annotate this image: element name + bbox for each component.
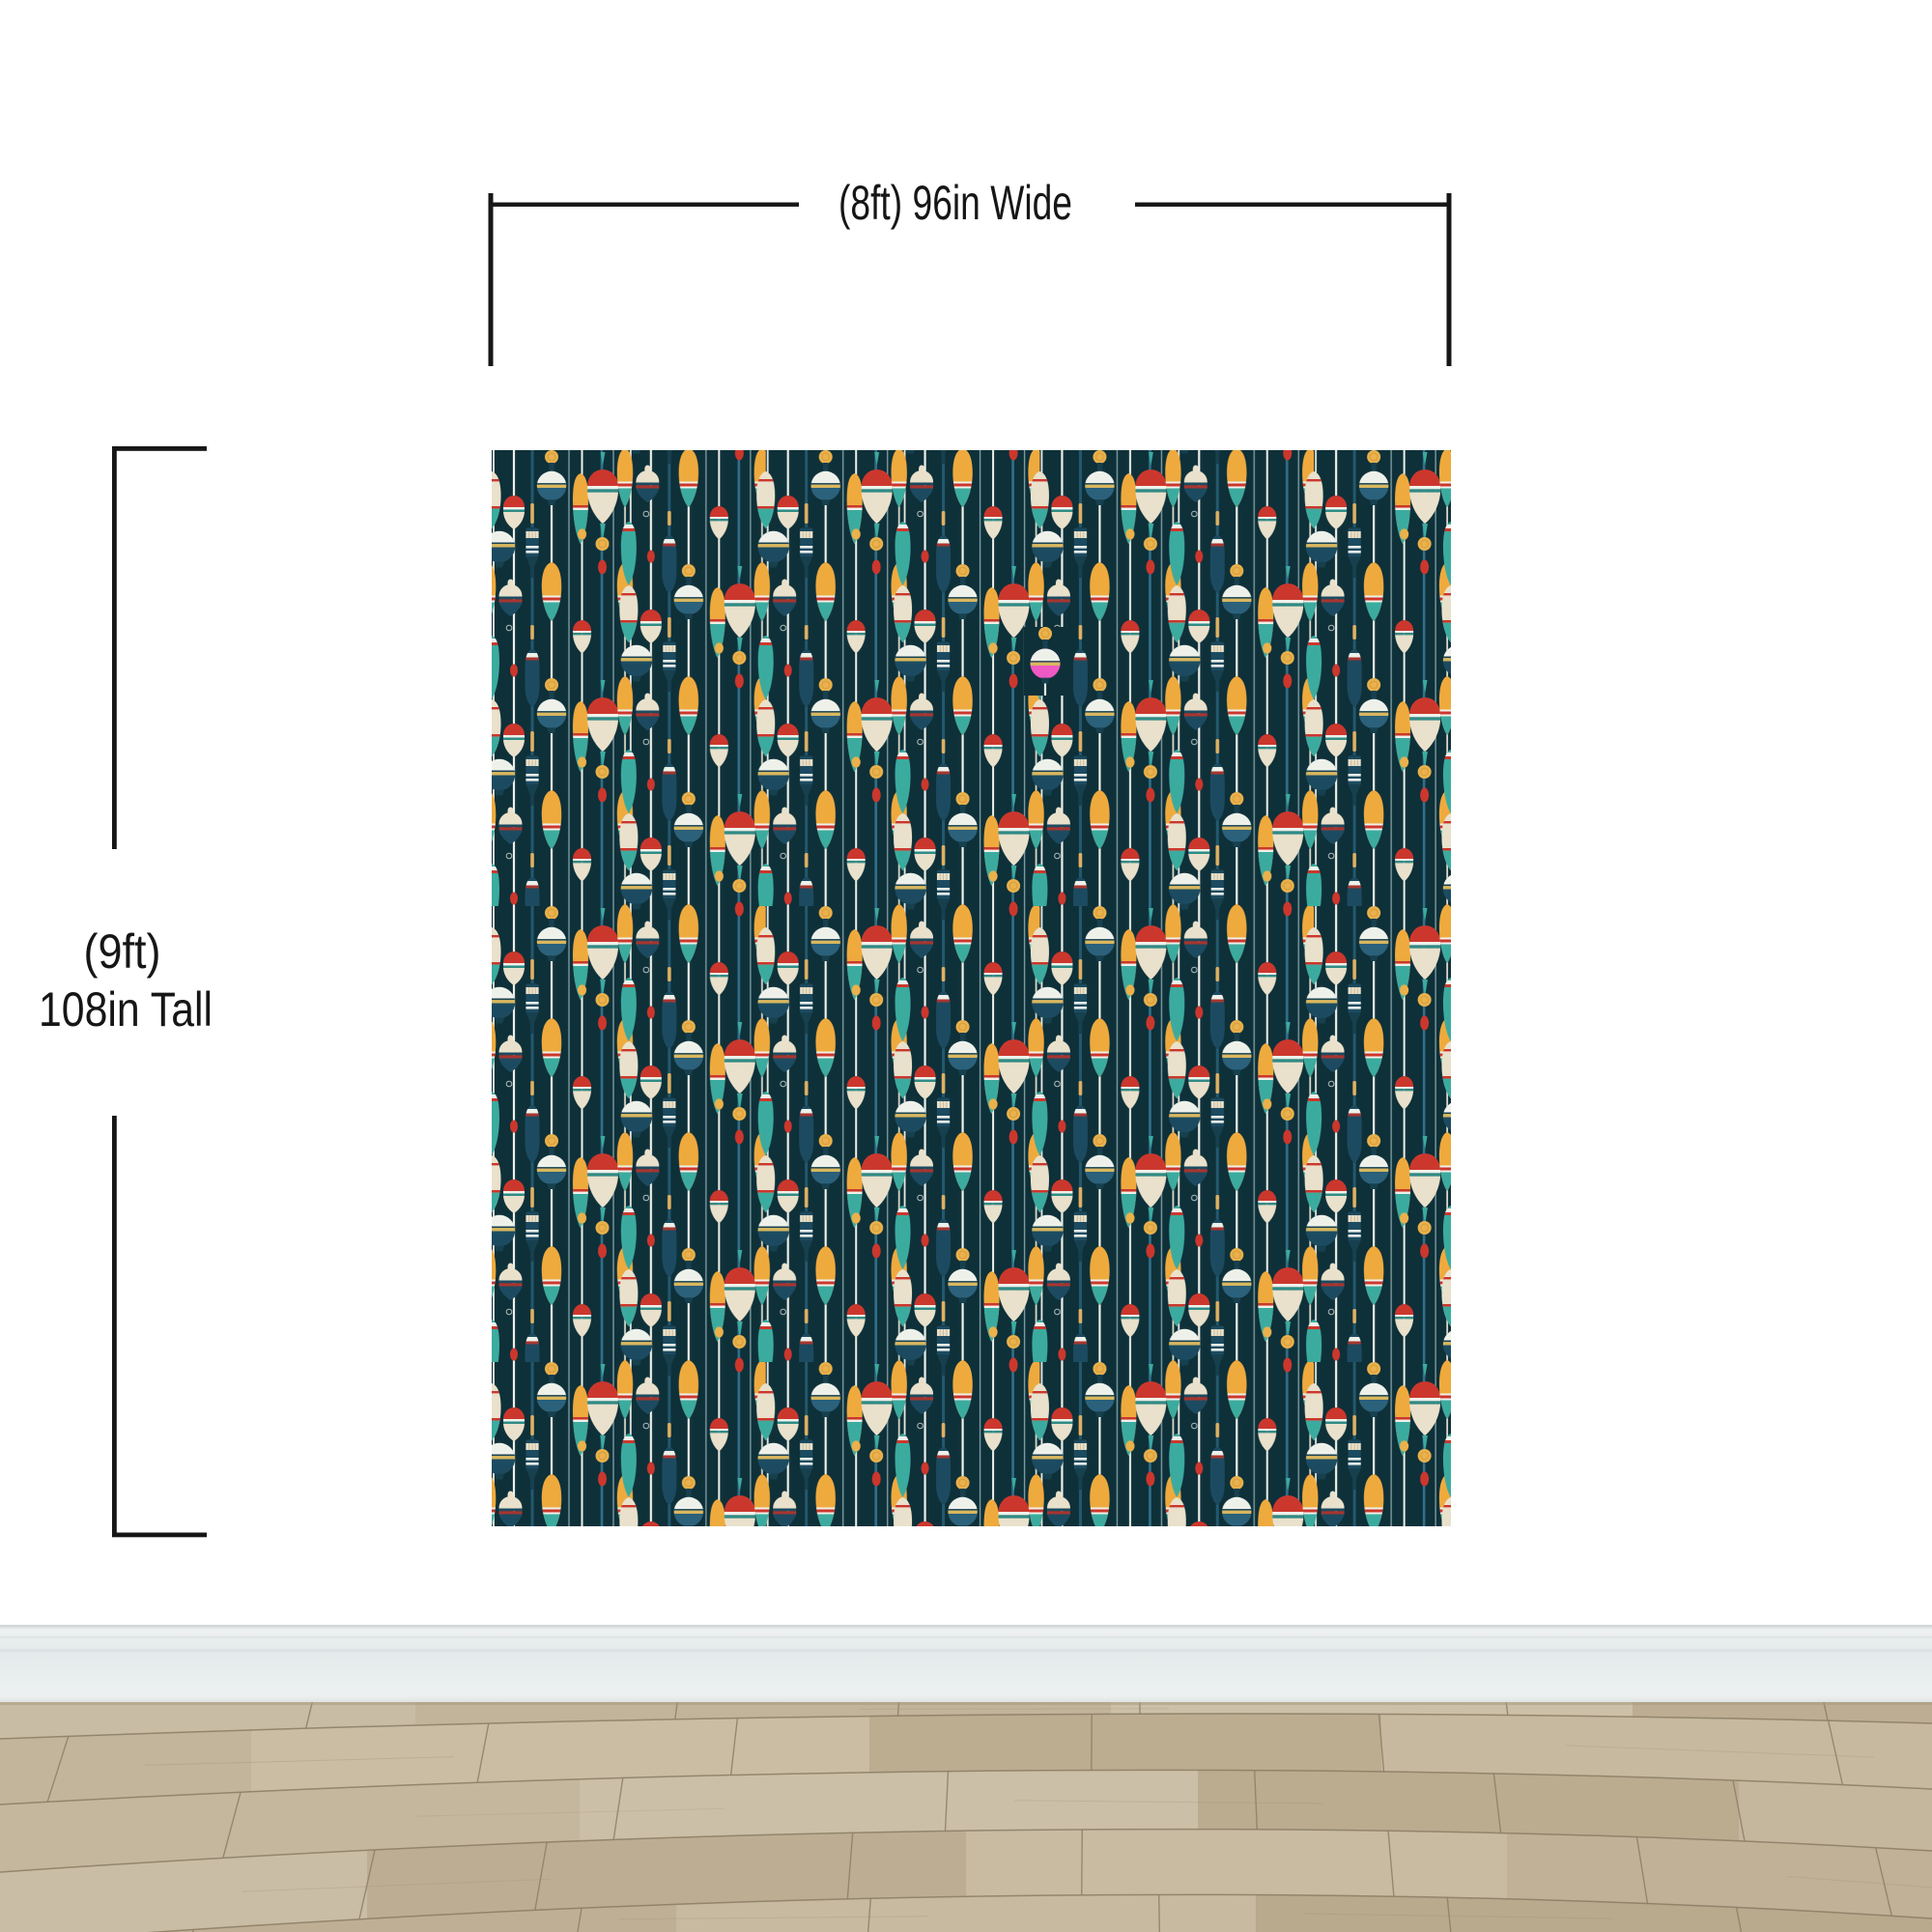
svg-text:108in Tall: 108in Tall <box>39 982 213 1037</box>
svg-text:(9ft): (9ft) <box>84 924 161 979</box>
svg-text:(8ft) 96in Wide: (8ft) 96in Wide <box>838 176 1072 230</box>
